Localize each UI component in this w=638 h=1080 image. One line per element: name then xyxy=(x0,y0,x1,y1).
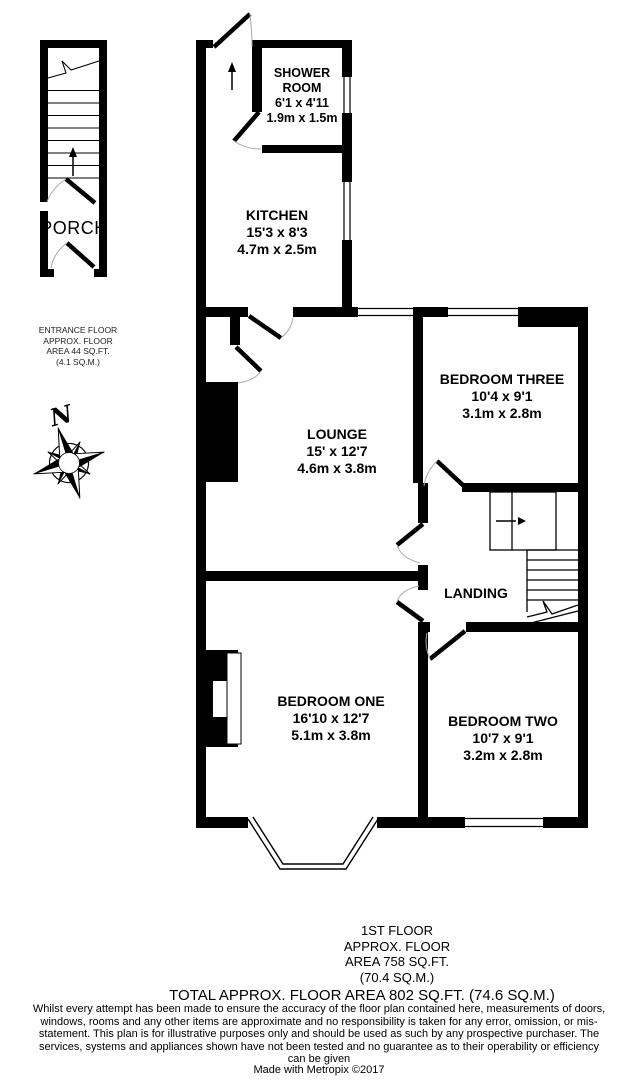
floor-note-line: APPROX. FLOOR xyxy=(297,939,497,955)
room-dims-imperial: 15'3 x 8'3 xyxy=(217,224,337,241)
room-label-landing: LANDING xyxy=(431,585,521,602)
first-floor-area-note: 1ST FLOOR APPROX. FLOOR AREA 758 SQ.FT. … xyxy=(297,923,497,985)
room-dims-imperial: 15' x 12'7 xyxy=(272,443,402,460)
total-floor-area: TOTAL APPROX. FLOOR AREA 802 SQ.FT. (74.… xyxy=(162,987,562,1004)
floor-note-line: 1ST FLOOR xyxy=(297,923,497,939)
room-dims-metric: 5.1m x 3.8m xyxy=(251,727,411,744)
floor-plan-drawing xyxy=(0,0,638,1080)
disclaimer-text: Whilst every attempt has been made to en… xyxy=(30,1003,608,1066)
room-name: KITCHEN xyxy=(217,207,337,224)
compass-rose-icon xyxy=(23,417,115,509)
room-name: SHOWER ROOM xyxy=(264,66,340,96)
room-label-lounge: LOUNGE 15' x 12'7 4.6m x 3.8m xyxy=(272,426,402,477)
entrance-floor-note: ENTRANCE FLOOR APPROX. FLOOR AREA 44 SQ.… xyxy=(33,325,123,367)
porch-up-arrow-icon xyxy=(69,147,77,176)
room-dims-metric: 1.9m x 1.5m xyxy=(264,111,340,126)
landing-stairs xyxy=(490,492,578,624)
floor-note-line: (70.4 SQ.M.) xyxy=(297,970,497,986)
entrance-note-line: (4.1 SQ.M.) xyxy=(33,357,123,368)
room-dims-metric: 4.7m x 2.5m xyxy=(217,241,337,258)
room-name: BEDROOM ONE xyxy=(251,693,411,710)
room-label-porch: PORCH xyxy=(39,218,109,239)
chimney-breast-lounge xyxy=(201,382,238,482)
room-label-bedroom-three: BEDROOM THREE 10'4 x 9'1 3.1m x 2.8m xyxy=(425,371,579,422)
room-dims-imperial: 10'7 x 9'1 xyxy=(428,730,578,747)
floor-plan-page: PORCH SHOWER ROOM 6'1 x 4'11 1.9m x 1.5m… xyxy=(0,0,638,1080)
room-dims-imperial: 16'10 x 12'7 xyxy=(251,710,411,727)
room-label-shower-room: SHOWER ROOM 6'1 x 4'11 1.9m x 1.5m xyxy=(264,66,340,126)
room-label-kitchen: KITCHEN 15'3 x 8'3 4.7m x 2.5m xyxy=(217,207,337,258)
floor-note-line: AREA 758 SQ.FT. xyxy=(297,954,497,970)
room-name: BEDROOM THREE xyxy=(425,371,579,388)
entrance-note-line: ENTRANCE FLOOR xyxy=(33,325,123,336)
room-dims-metric: 4.6m x 3.8m xyxy=(272,460,402,477)
stairs-direction-arrow-icon xyxy=(496,517,526,525)
room-name: LOUNGE xyxy=(272,426,402,443)
metropix-credit: Made with Metropix ©2017 xyxy=(129,1064,509,1076)
room-name: BEDROOM TWO xyxy=(428,713,578,730)
entrance-up-arrow-icon xyxy=(228,62,236,90)
bay-window xyxy=(248,817,378,869)
entrance-note-line: AREA 44 SQ.FT. xyxy=(33,346,123,357)
room-dims-imperial: 10'4 x 9'1 xyxy=(425,388,579,405)
room-dims-metric: 3.1m x 2.8m xyxy=(425,405,579,422)
entrance-note-line: APPROX. FLOOR xyxy=(33,336,123,347)
room-label-bedroom-one: BEDROOM ONE 16'10 x 12'7 5.1m x 3.8m xyxy=(251,693,411,744)
chimney-breast-bedroom-one xyxy=(201,650,241,747)
room-dims-imperial: 6'1 x 4'11 xyxy=(264,96,340,111)
room-dims-metric: 3.2m x 2.8m xyxy=(428,747,578,764)
room-label-bedroom-two: BEDROOM TWO 10'7 x 9'1 3.2m x 2.8m xyxy=(428,713,578,764)
